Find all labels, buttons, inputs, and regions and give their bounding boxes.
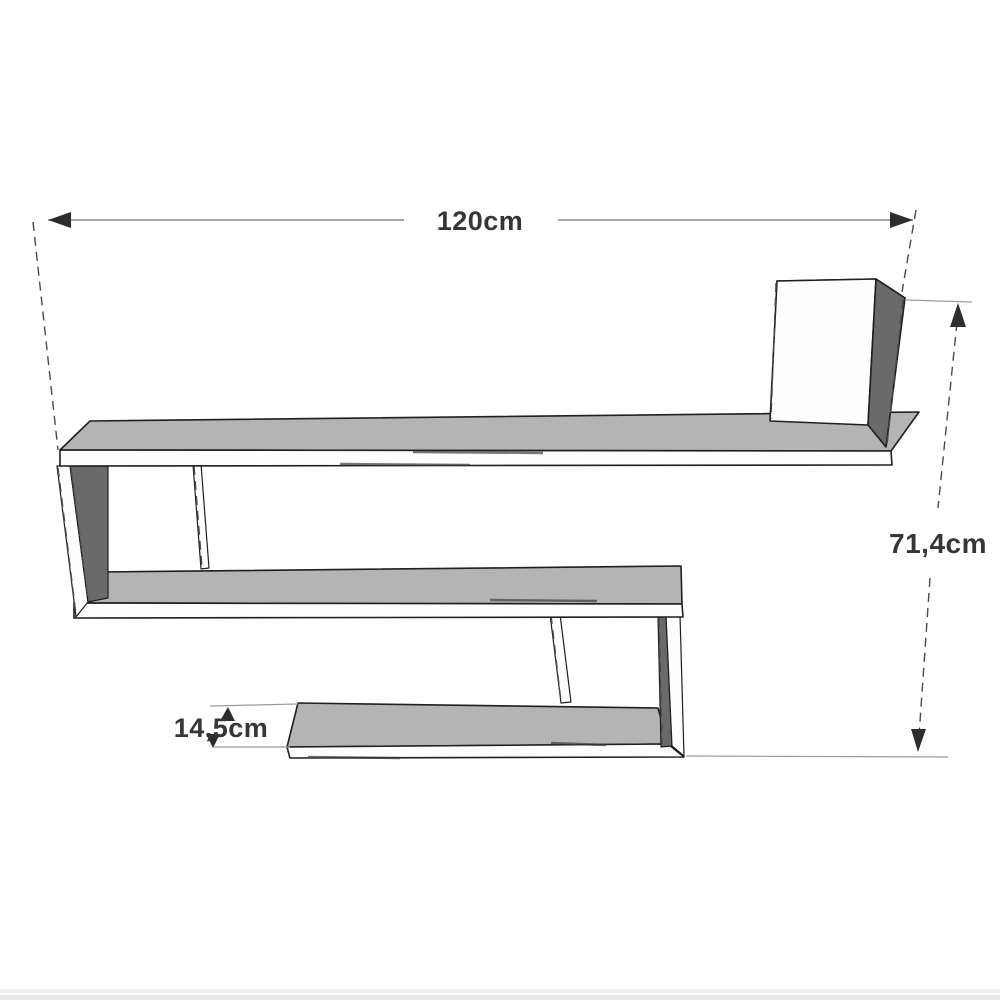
bottom-shelf [287,703,684,758]
shelf-3d-drawing: 120cm 71,4cm 14,5cm [0,0,1000,1000]
sketch-mark [413,452,543,453]
end-board-front-face [770,279,876,425]
footer-bar-top-stripe [0,989,1000,993]
divider-top [193,464,209,569]
sketch-mark [308,757,400,758]
middle-shelf-top-face [74,566,682,604]
sketch-mark [490,600,597,601]
right-wall [658,615,684,756]
footer-bar [0,989,1000,1000]
dimension-arrow-up-icon [950,303,966,327]
bottom-shelf-front-face [287,744,684,758]
shelf-dimension-diagram-page: 120cm 71,4cm 14,5cm [0,0,1000,1000]
height-dimension-line-bottom [919,578,930,736]
dimension-arrow-right-icon [890,212,913,228]
depth-extension-top [210,704,298,706]
divider-top-board [193,464,209,569]
left-wall [57,466,108,617]
footer-bar-bottom-stripe [0,995,1000,1000]
depth-dimension: 14,5cm [172,704,298,748]
end-board [770,279,905,447]
bottom-shelf-top-face [287,703,668,747]
sketch-mark [340,464,470,465]
height-dimension-label: 71,4cm [889,528,987,559]
dimension-arrow-left-icon [48,212,71,228]
height-dimension-line-top [938,322,957,508]
middle-shelf [74,566,683,618]
divider-bottom-board [550,614,571,703]
width-extension-left [33,222,58,450]
dimension-arrow-down-icon [911,729,926,752]
divider-bottom [550,614,571,703]
middle-shelf-front-face [74,603,683,618]
height-extension-bottom [686,756,948,757]
depth-dimension-label: 14,5cm [174,713,269,743]
width-dimension-label: 120cm [437,206,524,236]
height-extension-top [905,300,972,302]
